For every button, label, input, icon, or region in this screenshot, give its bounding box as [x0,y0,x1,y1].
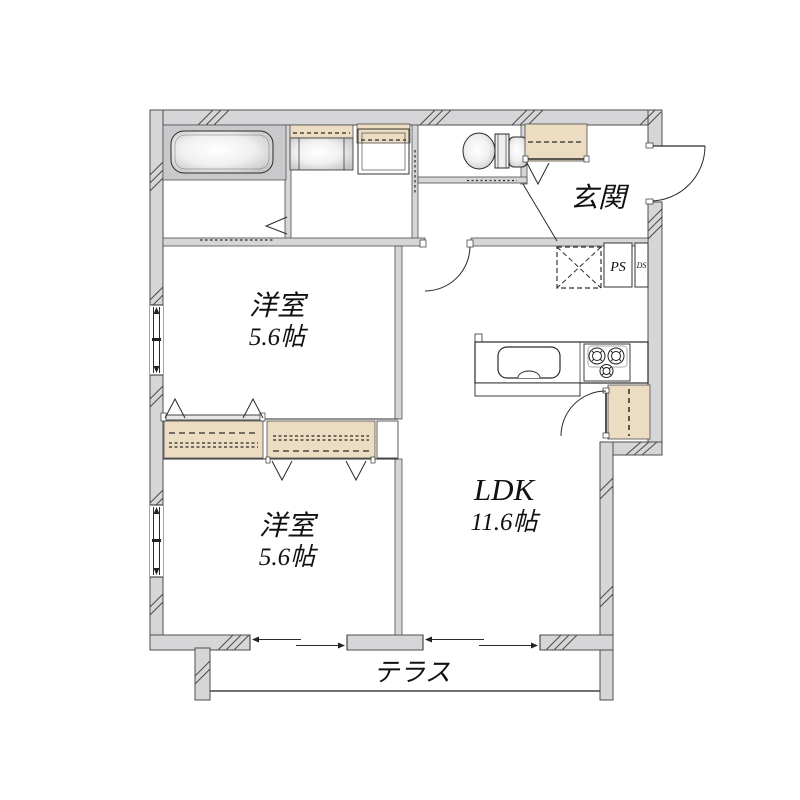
washbasin [290,125,353,170]
toilet-bowl [463,133,495,169]
shoe-cabinet [523,124,589,162]
ldk-door [420,240,473,291]
terrace: テラス [210,658,600,691]
terrace-label: テラス [373,658,450,687]
ldk-name-label: LDK [473,472,537,507]
burner-icon [608,348,624,364]
wall-bottom-c [540,635,613,650]
stove [584,344,630,381]
duct-space-box: DS [635,243,648,287]
entrance-step-line [523,184,557,241]
closet-end-box [377,421,398,458]
washroom [290,124,415,193]
window-left-upper [150,305,163,375]
pipe-space-label: PS [609,260,626,275]
entrance-label: 玄関 [570,183,630,214]
duct-space-label: DS [636,261,647,270]
bedroom-closets [161,399,398,480]
entrance-door [646,143,705,204]
window-bottom-ldk [423,635,540,650]
wall-horizontal-left [163,238,425,246]
window-left-lower [150,505,163,577]
service-boxes: PS DS [557,243,648,288]
wall-bedroom1-ldk [395,246,402,419]
toilet-tank [495,134,509,168]
pipe-space-box: PS [604,243,632,287]
bathroom-folding-door-icon [266,217,287,234]
floor-plan-drawing: 玄関 PS DS [0,0,800,800]
closet-door-arc [561,391,606,436]
bathroom [163,125,287,240]
closet-upper [161,399,265,458]
counter-ledge [475,383,580,396]
bedroom2-name-label: 洋室 [259,511,319,542]
washing-machine-space [357,124,410,174]
wall-bedroom2-ldk [395,459,402,635]
refrigerator-space [557,247,601,288]
bathtub [171,131,273,173]
floor-plan: 玄関 PS DS [0,0,800,800]
toilet-cistern [509,137,527,167]
bedroom1-name-label: 洋室 [249,291,309,322]
burner-icon [600,365,613,378]
closet-lower [266,421,375,480]
entrance-area: 玄関 [523,124,705,241]
cabinet-door-marker-icon [527,163,549,184]
closet-door-marker-icon [272,461,292,480]
bedroom2-size-label: 5.6帖 [259,544,318,571]
closet-door-marker-icon [346,461,366,480]
wall-bottom-b [347,635,423,650]
burner-icon [589,348,605,364]
toilet-room [463,133,527,181]
ldk-size-label: 11.6帖 [471,509,541,536]
wall-right-lower [600,442,613,700]
window-bottom-bedroom [250,635,347,650]
bedroom1-size-label: 5.6帖 [249,324,308,351]
